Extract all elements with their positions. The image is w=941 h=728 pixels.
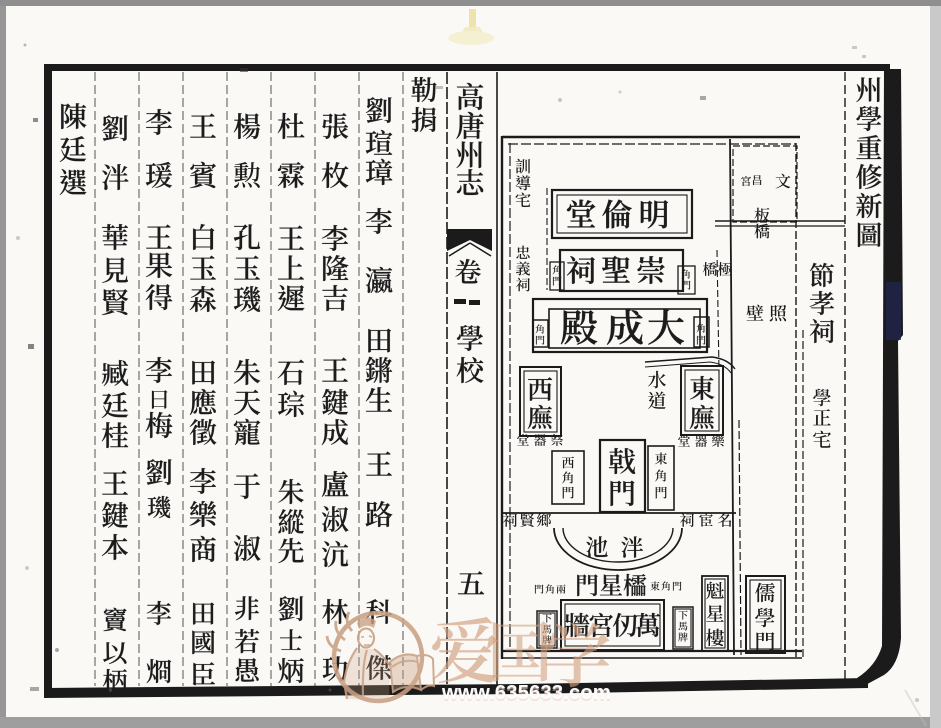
svg-text:www.635633.com: www.635633.com [441,681,611,704]
